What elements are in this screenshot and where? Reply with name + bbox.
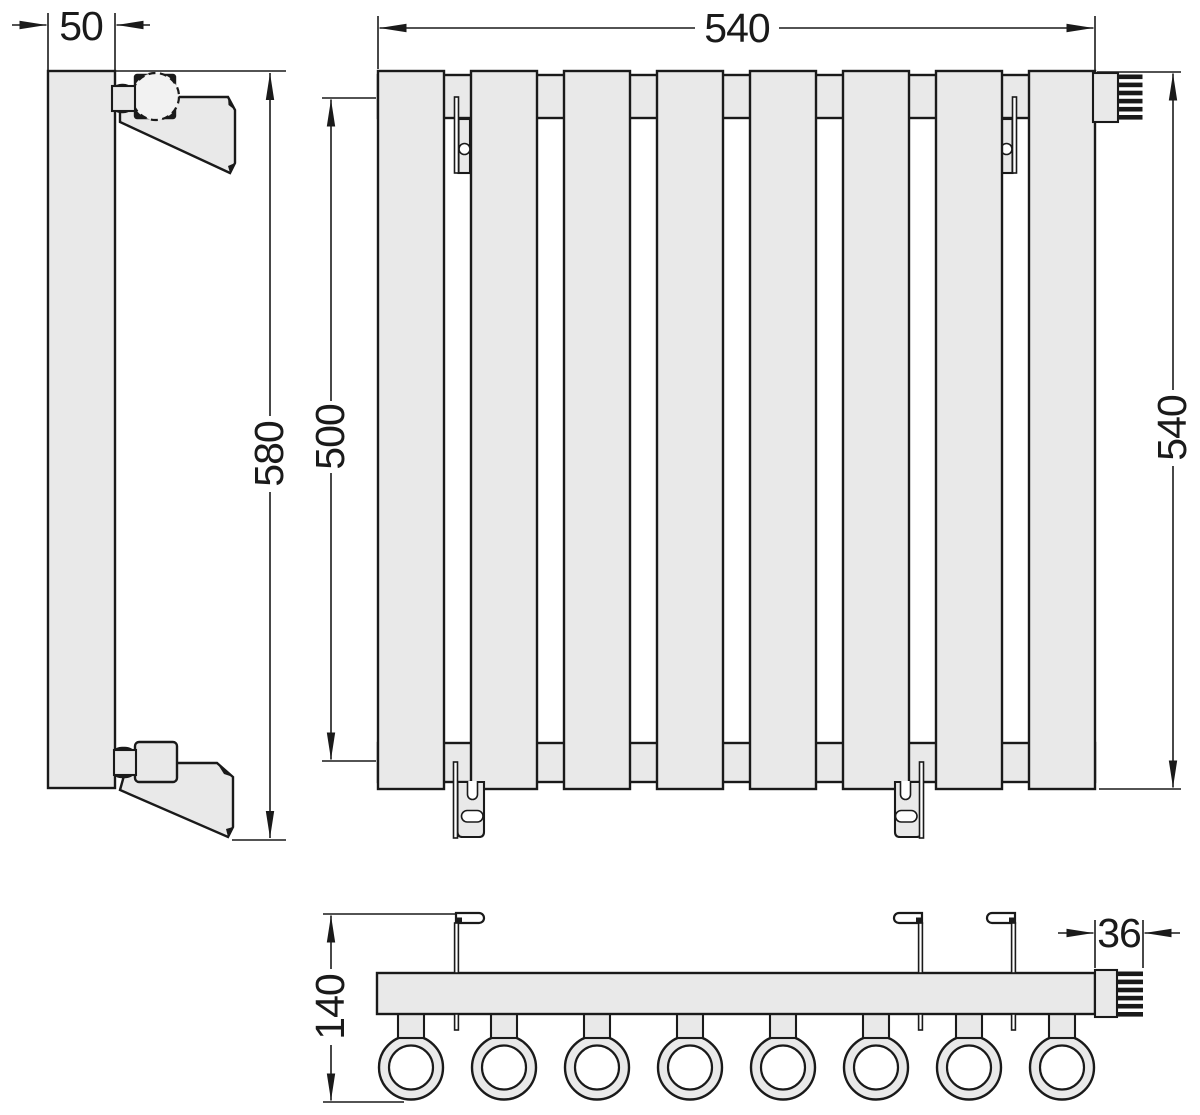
dim-panel-height: 540 xyxy=(1097,72,1195,789)
bracket-knob xyxy=(132,73,179,120)
dim-overall-height: 580 xyxy=(116,71,292,840)
valve-connector-front xyxy=(1093,73,1143,122)
panel xyxy=(936,71,1002,789)
panel xyxy=(750,71,816,789)
side-view xyxy=(48,71,235,837)
dim-label-500: 500 xyxy=(307,404,353,470)
dim-label-140: 140 xyxy=(307,974,353,1040)
bracket-stub-top xyxy=(112,86,135,111)
valve-ribs xyxy=(1118,972,1144,1017)
plan-view xyxy=(377,913,1143,1100)
panel xyxy=(843,71,909,789)
dim-label-36: 36 xyxy=(1097,910,1141,956)
dim-label-540-height: 540 xyxy=(1149,395,1195,461)
panel xyxy=(564,71,630,789)
dim-overall-width: 540 xyxy=(378,5,1095,71)
dim-mounting-distance: 500 xyxy=(307,98,376,761)
radiator-dimension-drawing: 50 580 540 500 xyxy=(0,0,1200,1115)
front-view xyxy=(378,71,1143,838)
dim-label-580: 580 xyxy=(246,421,292,487)
front-panels xyxy=(378,71,1095,789)
panel xyxy=(657,71,723,789)
drawing-canvas: 50 580 540 500 xyxy=(0,0,1200,1115)
valve-connector-plan xyxy=(1095,970,1143,1017)
dim-connector-width: 36 xyxy=(1058,910,1180,968)
dim-side-panel-width: 50 xyxy=(12,3,150,71)
panel xyxy=(1029,71,1095,789)
dim-label-50: 50 xyxy=(59,3,103,49)
dim-label-540-width: 540 xyxy=(704,5,770,51)
valve-ribs xyxy=(1119,75,1143,120)
tube-bores xyxy=(389,1046,1084,1090)
bracket-stub-bottom xyxy=(114,750,136,775)
panel xyxy=(471,71,537,789)
collector-bar xyxy=(377,973,1095,1014)
panel xyxy=(378,71,444,789)
side-panel xyxy=(48,71,115,788)
